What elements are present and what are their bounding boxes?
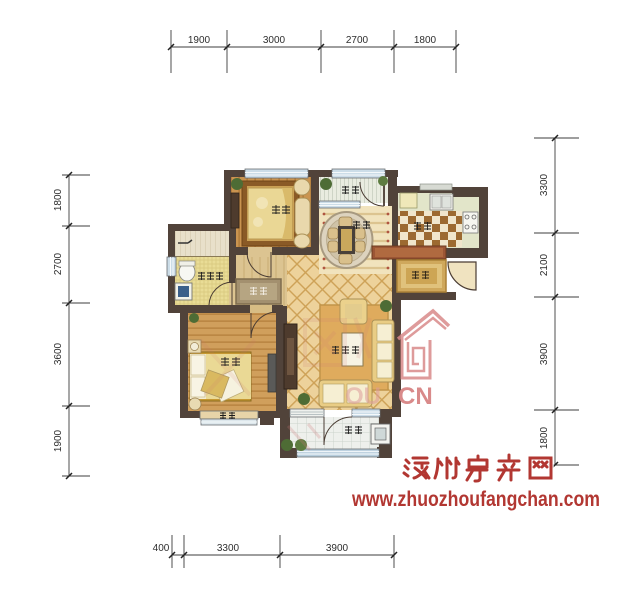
svg-text:OU: OU — [345, 383, 381, 410]
svg-text:3300: 3300 — [217, 543, 240, 554]
svg-text:www.zhuozhoufangchan.com: www.zhuozhoufangchan.com — [351, 488, 600, 511]
svg-text:3000: 3000 — [263, 35, 286, 46]
svg-text:1800: 1800 — [414, 35, 437, 46]
svg-text:1900: 1900 — [188, 35, 211, 46]
svg-text:1900: 1900 — [53, 429, 64, 452]
svg-text:CN: CN — [398, 383, 433, 410]
svg-text:3900: 3900 — [326, 543, 349, 554]
svg-text:3600: 3600 — [53, 342, 64, 365]
svg-text:2700: 2700 — [53, 252, 64, 275]
svg-text:1800: 1800 — [53, 188, 64, 211]
svg-text:2100: 2100 — [539, 253, 550, 276]
svg-text:1800: 1800 — [539, 426, 550, 449]
svg-text:2700: 2700 — [346, 35, 369, 46]
svg-text:400: 400 — [153, 543, 170, 554]
svg-text:3900: 3900 — [539, 342, 550, 365]
svg-text:3300: 3300 — [539, 173, 550, 196]
